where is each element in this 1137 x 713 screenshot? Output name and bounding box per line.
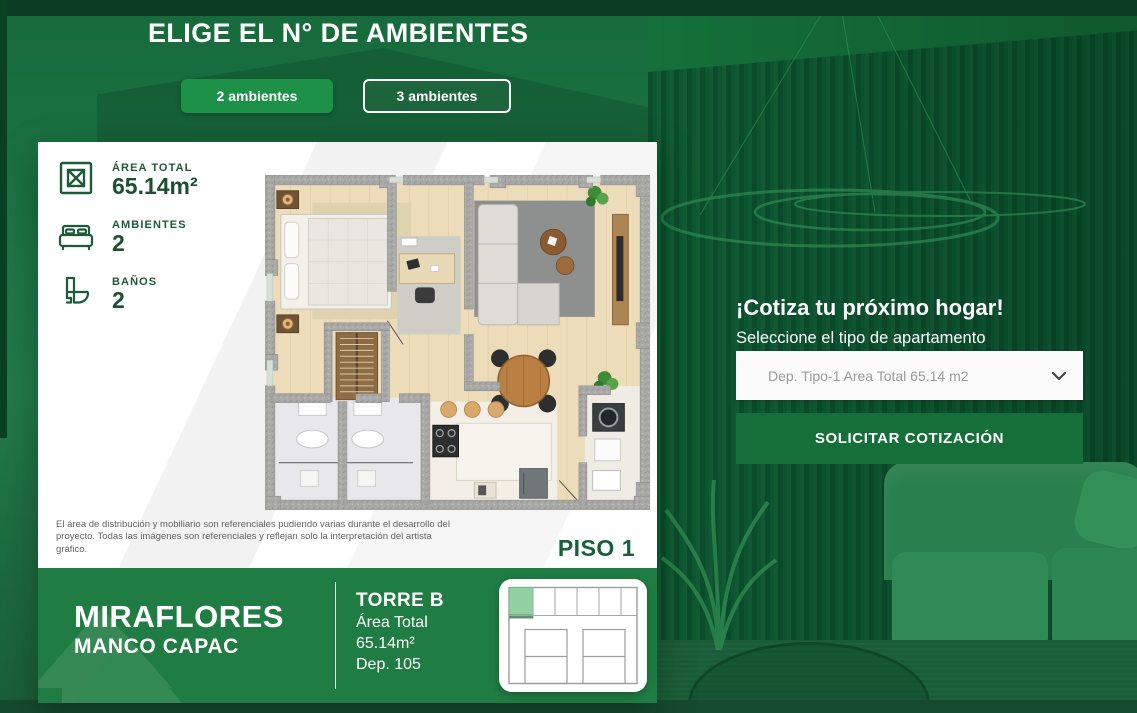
- stat-ambientes: AMBIENTES 2: [56, 215, 198, 255]
- tower-name: TORRE B: [356, 590, 444, 612]
- project-subtitle: MANCO CAPAC: [74, 635, 284, 659]
- apartment-card: ÁREA TOTAL 65.14m²: [38, 142, 657, 703]
- background-left-band: [0, 0, 7, 438]
- background-sofa-seat: [1052, 548, 1137, 652]
- request-quote-button[interactable]: SOLICITAR COTIZACIÓN: [736, 413, 1083, 464]
- disclaimer-text: El área de distribución y mobiliario son…: [56, 519, 458, 557]
- tower-area-label: Área Total: [356, 612, 444, 633]
- page-title: ELIGE EL N° DE AMBIENTES: [148, 18, 528, 49]
- apartment-stats: ÁREA TOTAL 65.14m²: [56, 158, 198, 329]
- stat-banos: BAÑOS 2: [56, 272, 198, 312]
- quote-select-label: Seleccione el tipo de apartamento: [736, 329, 986, 348]
- tower-area-value: 65.14m²: [356, 633, 444, 654]
- apartment-card-footer: MIRAFLORES MANCO CAPAC TORRE B Área Tota…: [38, 568, 657, 703]
- ambientes-tabs: 2 ambientes 3 ambientes: [181, 79, 511, 113]
- background-plant: [648, 440, 788, 660]
- plan-closet: [336, 333, 377, 400]
- project-name: MIRAFLORES: [74, 601, 284, 632]
- tab-3-ambientes[interactable]: 3 ambientes: [363, 79, 511, 113]
- tower-unit: Dep. 105: [356, 654, 444, 675]
- floor-label: PISO 1: [558, 535, 635, 562]
- apartment-type-select[interactable]: Dep. Tipo-1 Area Total 65.14 m2: [736, 351, 1083, 400]
- bed-icon: [56, 215, 96, 255]
- stat-value: 2: [112, 288, 157, 312]
- floor-position-diagram-graphic: [499, 579, 647, 692]
- stat-value: 65.14m²: [112, 174, 198, 198]
- floor-position-diagram: [499, 579, 647, 692]
- pendant-lamp-graphic: [640, 0, 1137, 290]
- toilet-icon: [56, 272, 96, 312]
- apartment-type-select-value: Dep. Tipo-1 Area Total 65.14 m2: [736, 368, 1051, 384]
- page: ELIGE EL N° DE AMBIENTES 2 ambientes 3 a…: [0, 0, 1137, 713]
- stat-area-total: ÁREA TOTAL 65.14m²: [56, 158, 198, 198]
- background-top-band: [0, 0, 1137, 16]
- stat-value: 2: [112, 231, 187, 255]
- tower-info: TORRE B Área Total 65.14m² Dep. 105: [356, 590, 444, 675]
- tab-2-ambientes[interactable]: 2 ambientes: [181, 79, 333, 113]
- chevron-down-icon: [1051, 371, 1067, 381]
- area-expand-icon: [56, 158, 96, 198]
- footer-divider: [335, 582, 336, 689]
- plan-desk-area: [397, 236, 460, 335]
- project-title: MIRAFLORES MANCO CAPAC: [74, 601, 284, 659]
- floor-plan-image: [265, 175, 650, 510]
- quote-heading: ¡Cotiza tu próximo hogar!: [736, 295, 1004, 321]
- apartment-card-body: ÁREA TOTAL 65.14m²: [38, 142, 657, 568]
- background-sofa-seat: [892, 552, 1048, 652]
